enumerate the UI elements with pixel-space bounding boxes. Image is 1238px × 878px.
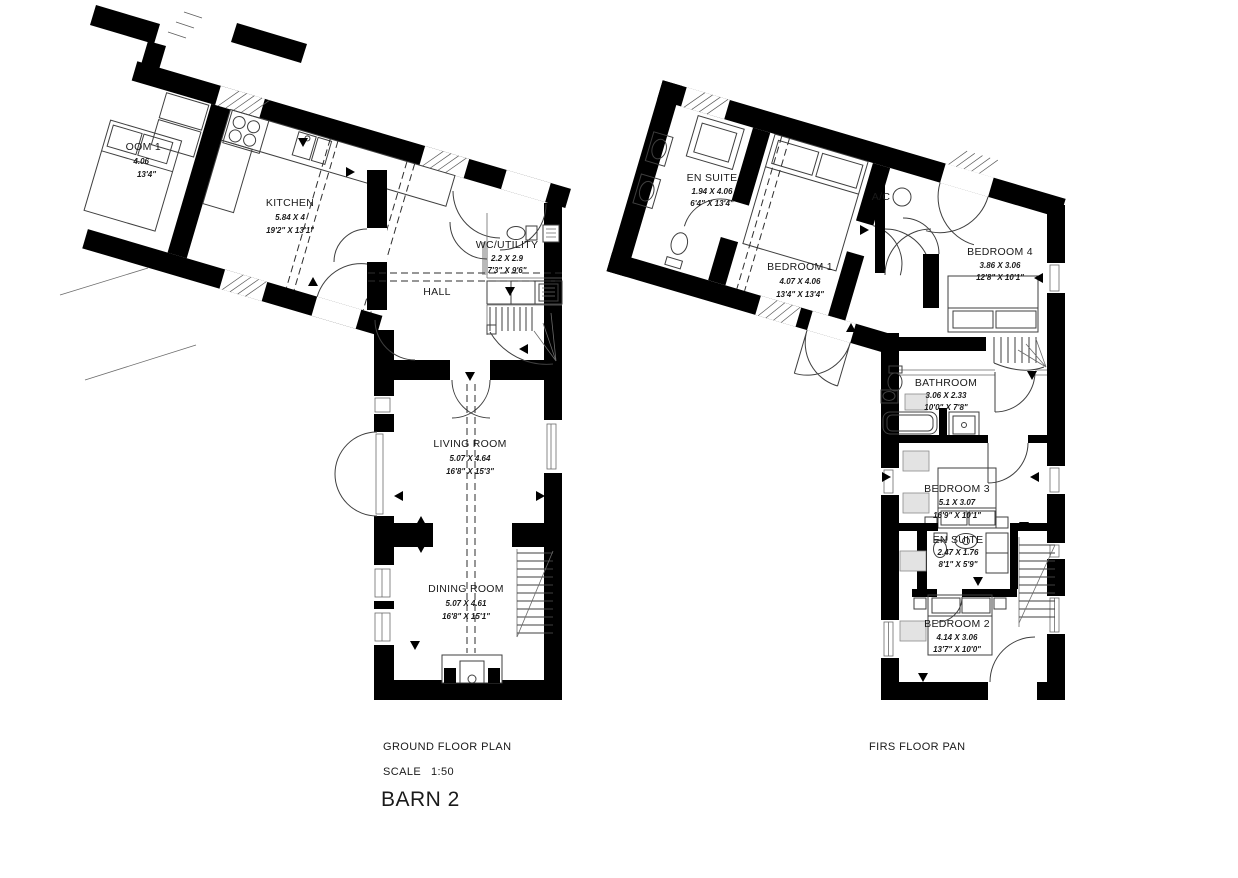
bathroom-metric: 3.06 X 2.33: [926, 391, 967, 400]
hall-label: HALL: [423, 286, 450, 298]
wc-utility-label: WC/UTILITY: [476, 239, 539, 251]
bottom-wall: [881, 682, 1065, 700]
ensuite1-label: EN SUITE: [687, 172, 738, 184]
dining-room-imperial: 16'8" X 15'1": [442, 612, 490, 621]
living-room-imperial: 16'8" X 15'3": [446, 467, 494, 476]
bedroom2-imperial: 13'7" X 10'0": [933, 645, 981, 654]
bedroom3-label: BEDROOM 3: [924, 483, 990, 495]
kitchen-imperial: 19'2" X 13'1": [266, 226, 314, 235]
kitchen-metric: 5.84 X 4: [275, 213, 305, 222]
bedroom3-imperial: 16'9" X 10'1": [933, 511, 981, 520]
first-floor-plan-title: FIRS FLOOR PAN: [869, 741, 965, 753]
ensuite1-metric: 1.94 X 4.06: [692, 187, 733, 196]
adjacent-room-label: OOM 1: [126, 141, 161, 153]
ensuite2-label: EN SUITE: [933, 534, 984, 546]
ensuite2-metric: 2.47 X 1.76: [937, 548, 979, 557]
living-room-label: LIVING ROOM: [433, 438, 506, 450]
adjacent-room-metric: 4.06: [132, 157, 149, 166]
wc-utility-imperial: 7'3" X 9'6": [488, 266, 527, 275]
scale-value: 1:50: [431, 766, 454, 778]
floor-plan-canvas: OOM 1 4.06 13'4" KITCHEN 5.84 X 4 19'2" …: [0, 0, 1238, 878]
skylight-icon: [903, 493, 929, 513]
kitchen-label: KITCHEN: [266, 197, 314, 209]
bedroom2-label: BEDROOM 2: [924, 618, 990, 630]
ensuite1-imperial: 6'4" X 13'4": [690, 199, 734, 208]
fireplace-icon: [442, 655, 502, 683]
bathroom-label: BATHROOM: [915, 377, 977, 389]
bathroom-imperial: 10'0" X 7'8": [924, 403, 968, 412]
scale-label: SCALE: [383, 766, 421, 778]
bedroom4-metric: 3.86 X 3.06: [980, 261, 1021, 270]
bedroom2-metric: 4.14 X 3.06: [936, 633, 978, 642]
skylight-icon: [903, 451, 929, 471]
dining-room-label: DINING ROOM: [428, 583, 504, 595]
ac-label: A/C: [872, 191, 891, 203]
skylight-icon: [900, 621, 926, 641]
bedroom4-label: BEDROOM 4: [967, 246, 1033, 258]
skylight-icon: [900, 551, 926, 571]
living-room-metric: 5.07 X 4.64: [450, 454, 491, 463]
drawing-title: BARN 2: [381, 788, 460, 811]
ensuite2-imperial: 8'1" X 5'9": [939, 560, 978, 569]
wc-utility-metric: 2.2 X 2.9: [490, 254, 524, 263]
bedroom1-imperial: 13'4" X 13'4": [776, 290, 824, 299]
bedroom1-metric: 4.07 X 4.06: [779, 277, 821, 286]
bedroom3-metric: 5.1 X 3.07: [939, 498, 976, 507]
adjacent-room-imperial: 13'4": [137, 170, 156, 179]
ac-cupboard-wall: [875, 173, 885, 273]
bedroom1-label: BEDROOM 1: [767, 261, 833, 273]
floor-plan-sheet: OOM 1 4.06 13'4" KITCHEN 5.84 X 4 19'2" …: [0, 0, 1238, 878]
dining-room-metric: 5.07 X 4.61: [446, 599, 487, 608]
ground-floor-plan-title: GROUND FLOOR PLAN: [383, 741, 511, 753]
bedroom4-imperial: 12'8" X 10'1": [976, 273, 1024, 282]
boiler-icon: [543, 225, 559, 242]
